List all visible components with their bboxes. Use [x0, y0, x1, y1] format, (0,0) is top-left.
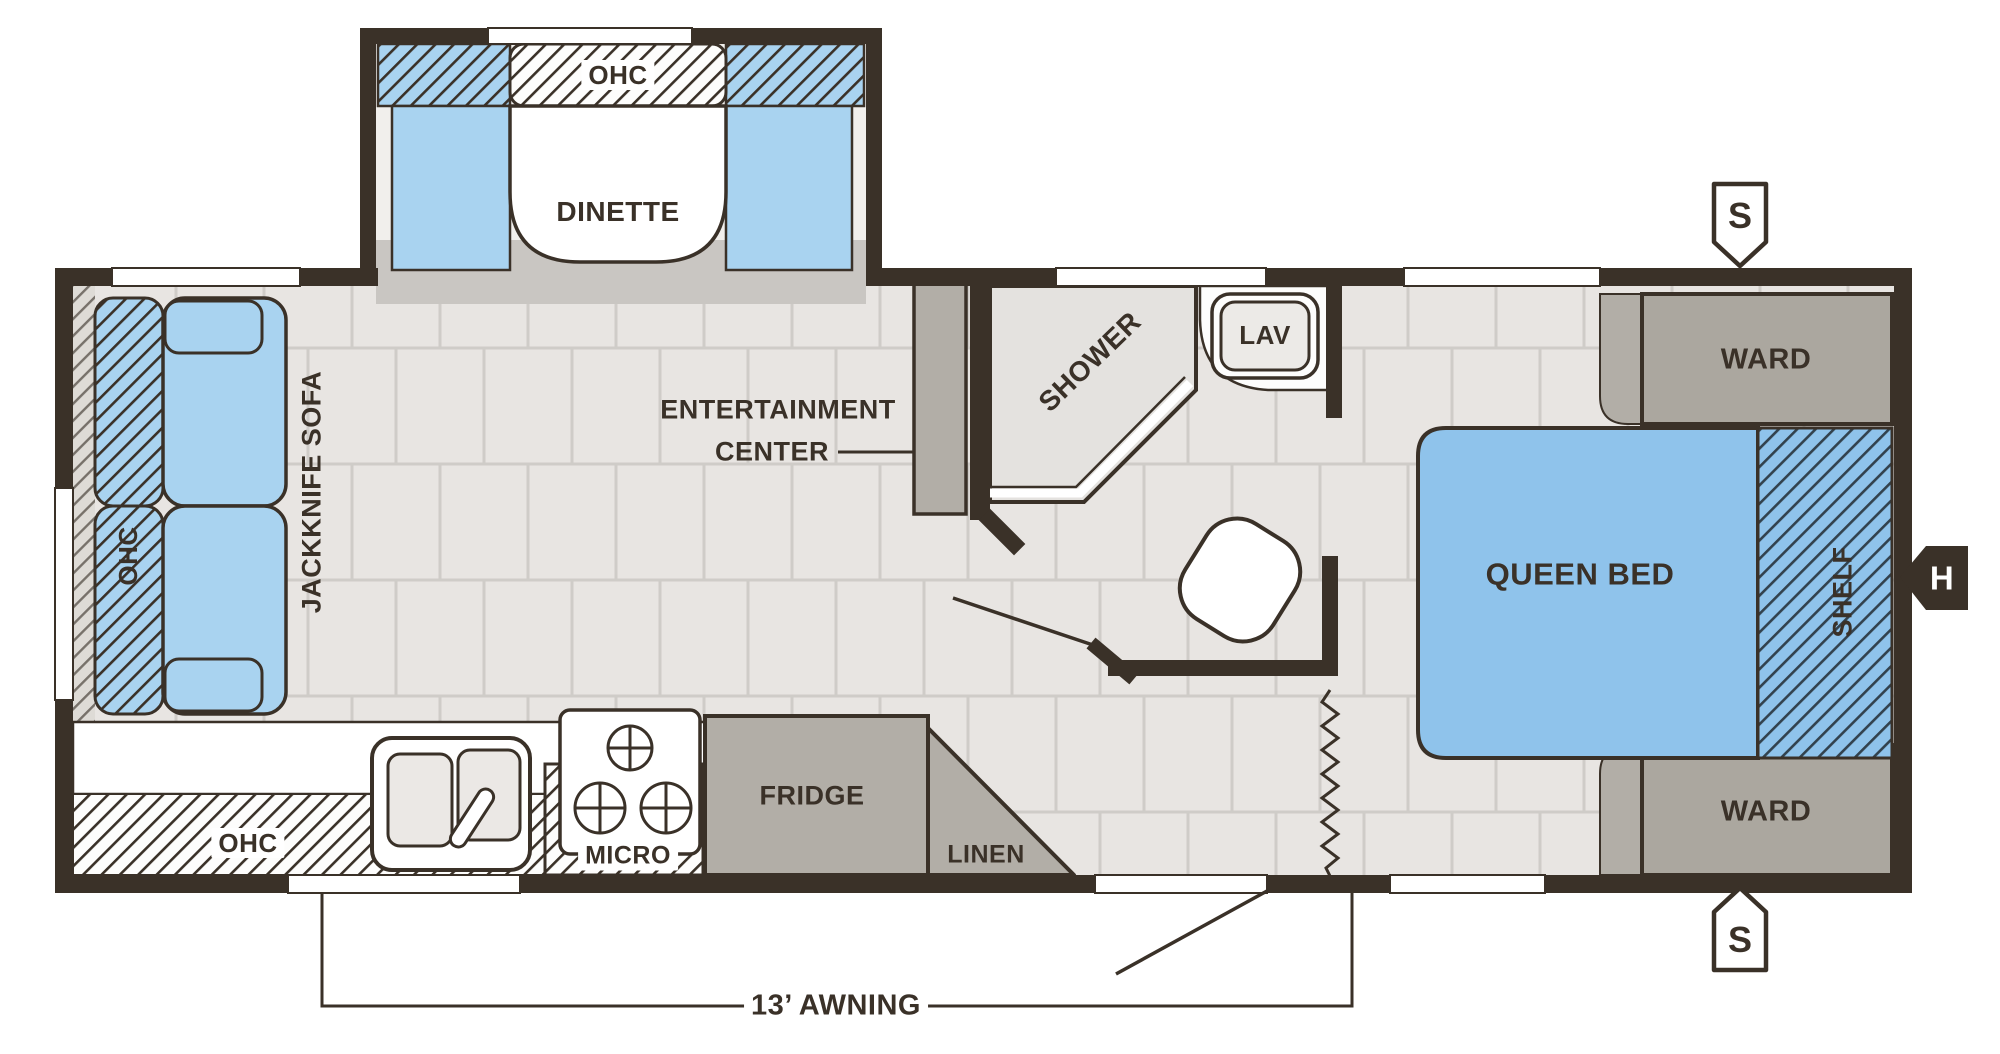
- label-linen: LINEN: [947, 843, 1025, 868]
- dinette-window-seatback-right: [726, 44, 864, 106]
- label-ward-bottom: WARD: [1721, 798, 1812, 827]
- ward-top-step: [1600, 294, 1642, 424]
- label-sofa-ohc: OHC: [115, 526, 141, 585]
- label-ward-top: WARD: [1721, 346, 1812, 375]
- bath-bedroom-wall-upper: [1326, 268, 1342, 418]
- entertainment-center-cabinet: [914, 278, 966, 514]
- label-speaker-top: S: [1728, 198, 1752, 234]
- label-entertainment-line1: ENTERTAINMENT: [660, 397, 896, 424]
- label-kitchen-ohc: OHC: [211, 828, 284, 858]
- dinette-bench-right: [726, 106, 852, 270]
- label-jackknife-sofa: JACKKNIFE SOFA: [299, 371, 326, 614]
- floorplan-canvas: OHC DINETTE OHC JACKKNIFE SOFA ENTERTAIN…: [0, 0, 2000, 1054]
- bath-half-wall-vertical: [1322, 556, 1338, 676]
- entry-door-opening: [1095, 875, 1267, 893]
- dinette-bench-left: [392, 106, 510, 270]
- entertainment-partition-wall: [970, 268, 990, 520]
- queen-bed: [1418, 428, 1758, 758]
- sofa-armrest-bottom: [165, 659, 262, 711]
- label-fridge: FRIDGE: [759, 783, 864, 810]
- sofa-armrest-top: [165, 301, 262, 353]
- ward-bottom-step: [1600, 746, 1642, 875]
- label-dinette: DINETTE: [556, 198, 679, 226]
- entry-door-swing-line: [1116, 891, 1267, 974]
- label-shelf: SHELF: [1830, 546, 1857, 637]
- label-speaker-bottom: S: [1728, 922, 1752, 958]
- label-lav: LAV: [1239, 322, 1291, 348]
- label-queen-bed: QUEEN BED: [1486, 559, 1675, 590]
- label-dinette-ohc: OHC: [581, 60, 654, 90]
- sink-bowl-left: [388, 754, 452, 846]
- label-hitch: H: [1930, 562, 1954, 595]
- label-entertainment-line2: CENTER: [715, 439, 829, 466]
- bed-shelf: [1758, 428, 1892, 758]
- label-awning: 13’ AWNING: [744, 990, 928, 1023]
- bath-half-wall-horizontal: [1108, 660, 1338, 676]
- label-micro: MICRO: [578, 842, 678, 871]
- dinette-window-seatback-left: [378, 44, 510, 106]
- dinette-table: [510, 106, 726, 262]
- sofa-back-upper: [95, 298, 163, 506]
